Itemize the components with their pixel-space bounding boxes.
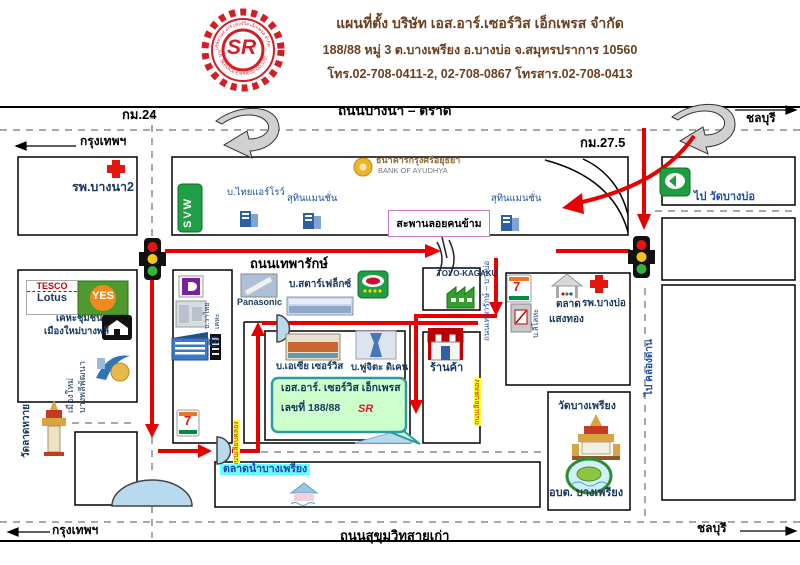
wat-bangphriang-label: วัดบางเพรียง xyxy=(558,401,616,412)
suthin-mansion-left-label: สุทินแมนชั่น xyxy=(287,194,337,204)
km275-label: กม.27.5 xyxy=(580,136,625,150)
tesco-label: TESCO xyxy=(27,281,77,292)
sr-mini-logo-letters: SR xyxy=(358,404,373,416)
wat-lat-wai-temple-icon xyxy=(42,400,66,456)
floating-market-label: ตลาดน้ำบางเพรียง xyxy=(220,464,310,475)
svw-sign-label: SVW xyxy=(183,197,195,228)
road-thepharak-label: ถนนเทพารักษ์ xyxy=(250,257,328,271)
gray-logo-box xyxy=(511,304,531,332)
sr-company-line1-label: เอส.อาร์. เซอร์วิส เอ็กเพรส xyxy=(281,383,401,394)
to-wat-bangbo-label: ไป วัดบางบ่อ xyxy=(694,192,755,204)
company-phone: โทร.02-708-0411-2, 02-708-0867 โทรสาร.02… xyxy=(290,68,670,81)
starflex-label: บ.สตาร์เฟล็กซ์ xyxy=(289,280,351,291)
to-khlong-dan-label: ไป คลองด่าน xyxy=(645,339,656,396)
wat-lat-wai-label: วัดลาดหวาย xyxy=(22,404,33,458)
green-brand-logo xyxy=(358,271,388,298)
purple-brand-logo xyxy=(179,276,203,297)
shop-label: ร้านค้า xyxy=(430,363,463,375)
khetha-line2-label: เมืองใหม่บางพลี xyxy=(44,327,109,337)
chonburi-bottom-label: ชลบุรี xyxy=(697,522,727,535)
location-map: บริษัท เอส.อาร์.เซอร์วิส เอ็กเพรส จำกัด … xyxy=(0,0,800,565)
u-turn-arrow-icon xyxy=(216,104,735,158)
bank-ayudhya-th-label: ธนาคารกรุงศรีอยุธยา xyxy=(376,156,460,165)
toyo-kagaku-label: TOYO-KAGAKU xyxy=(437,270,497,278)
muang-mai-line1-label: เมืองใหม่ xyxy=(66,378,75,413)
bank-ayudhya-logo xyxy=(354,158,372,176)
map-title: แผนที่ตั้ง บริษัท เอส.อาร์.เซอร์วิส เอ็ก… xyxy=(290,16,670,31)
bangkok-bottom-label: กรุงเทพฯ xyxy=(52,524,98,537)
lotus-label: Lotus xyxy=(27,292,77,304)
canal-road-label-left: ถนนเลียบคลอง xyxy=(233,420,240,468)
company-address: 188/88 หมู่ 3 ต.บางเพรียง อ.บางบ่อ จ.สมุ… xyxy=(290,44,670,57)
seven-eleven-right-label: 7 xyxy=(513,280,520,294)
sr-company-line2-label: เลขที่ 188/88 xyxy=(281,403,340,414)
starflex-photo xyxy=(287,297,353,315)
thai-arrow-label: บ.ไทยแอร์โรว์ xyxy=(227,188,285,198)
sr-logo-letters: SR xyxy=(227,37,256,59)
seven-eleven-left-label: 7 xyxy=(184,414,191,428)
company-small-1-label: บ.วาไทย xyxy=(204,303,211,330)
asia-service-photo xyxy=(286,334,340,360)
company-small-2-label: เคหะ xyxy=(214,314,221,329)
green-sign-icon xyxy=(660,168,690,196)
shop-icon xyxy=(428,328,463,360)
asia-service-label: บ.เอเซีย เซอร์วิส xyxy=(276,362,343,372)
footbridge-label: สะพานลอยคนข้าม xyxy=(396,215,481,232)
panasonic-photo xyxy=(241,274,277,297)
panasonic-label: Panasonic xyxy=(237,298,282,307)
yes-label: YES xyxy=(92,291,114,303)
bangkok-top-label: กรุงเทพฯ xyxy=(80,135,126,148)
fujita-photo xyxy=(356,331,396,359)
footbridge-callout: สะพานลอยคนข้าม xyxy=(388,210,490,237)
road-sukhumvit-old-label: ถนนสุขุมวิทสายเก่า xyxy=(340,529,449,543)
at-logo: @ xyxy=(208,335,220,348)
suthin-mansion-right-label: สุทินแมนชั่น xyxy=(491,194,541,204)
km24-label: กม.24 xyxy=(122,108,157,122)
hospital-bangna2-label: รพ.บางนา2 xyxy=(72,181,134,194)
tesco-lotus-logo: TESCO Lotus xyxy=(26,280,78,315)
map-graphics: บริษัท เอส.อาร์.เซอร์วิส เอ็กเพรส จำกัด … xyxy=(0,0,800,565)
chonburi-top-label: ชลบุรี xyxy=(746,112,776,125)
talat-line1-label: ตลาด xyxy=(556,300,581,311)
fujita-label: บ.ฟูจิตะ ดิเคน xyxy=(351,363,408,373)
hospital-bangbo-label: รพ.บางบ่อ xyxy=(582,299,626,310)
gray-building-photo xyxy=(176,301,206,327)
canal-road-label-right: ถนนเลียบคลอง xyxy=(474,378,481,426)
obt-bangphriang-label: อบต. บางเพรียง xyxy=(549,488,623,500)
khetha-line1-label: เคหะชุมชน xyxy=(56,314,103,324)
talat-line2-label: แสงทอง xyxy=(549,315,584,326)
road-bangna-trad-label: ถนนบางนา – ตราด xyxy=(338,104,452,118)
metal-co-label: บ.ลีโลหะ xyxy=(532,309,540,338)
muang-mai-line2-label: บางพลีพัฒนา xyxy=(78,361,87,413)
bank-ayudhya-en-label: BANK OF AYUDHYA xyxy=(378,167,448,175)
